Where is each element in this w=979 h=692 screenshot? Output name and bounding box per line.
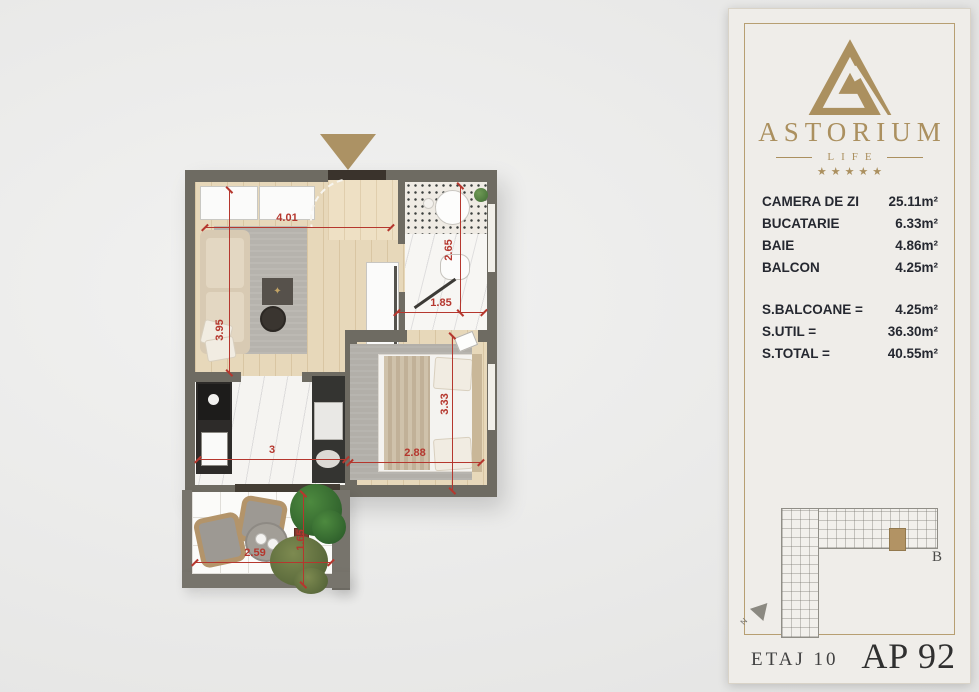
burner bbox=[208, 394, 219, 405]
dim-living-width: 4.01 bbox=[272, 212, 302, 224]
kitchen-sink bbox=[201, 432, 228, 466]
bed-pillow bbox=[433, 357, 473, 392]
dim-bath-height: 2.65 bbox=[443, 235, 455, 265]
dim-bath-width: 1.85 bbox=[426, 297, 456, 309]
window bbox=[488, 364, 495, 430]
dim-balcony-width: 2.59 bbox=[240, 547, 270, 559]
dim-sleeping-width: 2.88 bbox=[400, 447, 430, 459]
plant bbox=[474, 188, 488, 202]
interior-wall bbox=[345, 330, 407, 342]
dim-living-height: 3.95 bbox=[214, 315, 226, 345]
apartment-number: AP 92 bbox=[861, 635, 956, 677]
fridge bbox=[314, 402, 343, 440]
building-wing-left bbox=[781, 508, 819, 638]
floor-plan: ✦ 4.01 3.95 1.85 2.65 3 2.88 bbox=[182, 132, 502, 592]
north-arrow-icon bbox=[750, 597, 774, 621]
dim-line-living-width bbox=[205, 227, 390, 228]
dim-line-sleeping-width bbox=[350, 462, 480, 463]
bed-pillow bbox=[433, 437, 473, 472]
floor-label: ETAJ 10 bbox=[751, 649, 839, 671]
interior-wall bbox=[398, 182, 405, 244]
window bbox=[488, 204, 495, 272]
dim-line-living-height bbox=[229, 190, 230, 372]
sink bbox=[435, 190, 470, 225]
tree bbox=[312, 510, 346, 544]
coffee-table bbox=[260, 306, 286, 332]
dim-line-balcony-width bbox=[195, 562, 330, 563]
dim-sleeping-height: 3.33 bbox=[439, 389, 451, 419]
block-label: B bbox=[932, 549, 942, 566]
interior-wall bbox=[478, 330, 497, 342]
side-table: ✦ bbox=[262, 278, 293, 305]
info-card: ASTORIUM LIFE ★★★★★ CAMERA DE ZI 25.11m²… bbox=[728, 8, 971, 684]
dim-line-kitchen-width bbox=[198, 459, 345, 460]
soap-dish bbox=[423, 198, 434, 209]
dim-line-sleeping-height bbox=[452, 336, 453, 490]
dim-balcony-height: 1.65 bbox=[295, 525, 307, 555]
interior-wall bbox=[195, 372, 241, 382]
entry-marker-icon bbox=[320, 134, 376, 170]
dim-line-bath-width bbox=[397, 312, 483, 313]
north-label: N bbox=[739, 616, 750, 626]
headboard bbox=[472, 354, 482, 472]
dim-line-bath-height bbox=[460, 186, 461, 312]
dim-kitchen-width: 3 bbox=[257, 444, 287, 456]
highlighted-unit bbox=[889, 528, 906, 551]
mini-building-plan: B N bbox=[729, 9, 970, 683]
